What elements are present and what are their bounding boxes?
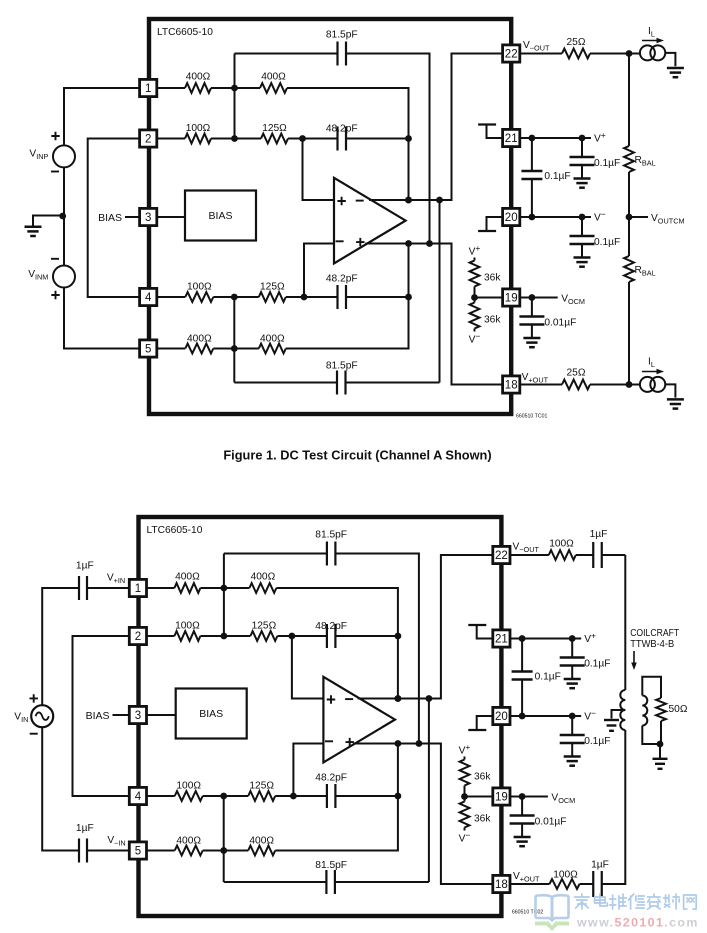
svg-text:1µF: 1µF [76,823,94,834]
svg-text:125Ω: 125Ω [262,123,287,134]
svg-text:1µF: 1µF [76,561,94,572]
svg-text:48.2pF: 48.2pF [315,621,347,632]
svg-text:3: 3 [135,710,141,722]
svg-text:400Ω: 400Ω [175,572,200,583]
svg-text:4: 4 [135,791,142,803]
svg-text:0.1µF: 0.1µF [535,672,561,683]
svg-text:36k: 36k [474,814,491,825]
svg-text:660510 TC02: 660510 TC02 [512,910,543,916]
svg-text:50Ω: 50Ω [669,704,688,715]
svg-text:25Ω: 25Ω [567,368,586,379]
svg-text:0.1µF: 0.1µF [594,237,620,248]
svg-text:TTWB-4-B: TTWB-4-B [630,639,674,650]
svg-text:4: 4 [145,292,152,304]
svg-text:1: 1 [145,83,151,95]
svg-text:125Ω: 125Ω [249,781,274,792]
svg-text:100Ω: 100Ω [549,539,574,550]
svg-text:0.1µF: 0.1µF [594,158,620,169]
svg-text:400Ω: 400Ω [251,572,276,583]
svg-text:19: 19 [495,792,508,804]
svg-text:5: 5 [145,344,151,356]
svg-text:81.5pF: 81.5pF [326,361,358,372]
svg-text:0.01µF: 0.01µF [544,318,576,329]
svg-text:400Ω: 400Ω [176,836,201,847]
svg-text:1: 1 [135,583,141,595]
svg-text:400Ω: 400Ω [249,836,274,847]
svg-text:LTC6605-10: LTC6605-10 [147,525,203,536]
svg-text:BIAS: BIAS [209,210,233,222]
svg-text:18: 18 [495,879,508,891]
svg-text:1µF: 1µF [591,860,609,871]
svg-text:0.1µF: 0.1µF [584,659,610,670]
svg-text:660510 TC01: 660510 TC01 [516,414,547,420]
svg-text:36k: 36k [484,273,501,284]
svg-text:25Ω: 25Ω [567,37,586,48]
svg-text:5: 5 [135,846,141,858]
svg-text:81.5pF: 81.5pF [315,530,347,541]
svg-text:2: 2 [135,631,141,643]
svg-text:18: 18 [505,380,518,392]
svg-text:100Ω: 100Ω [553,870,578,881]
svg-text:400Ω: 400Ω [261,72,286,83]
svg-text:1µF: 1µF [590,529,608,540]
svg-text:20: 20 [495,711,508,723]
svg-text:21: 21 [505,133,518,145]
svg-text:22: 22 [505,49,518,61]
svg-text:21: 21 [495,634,508,646]
svg-text:BIAS: BIAS [199,708,223,720]
svg-text:20: 20 [505,212,518,224]
svg-text:100Ω: 100Ω [186,123,211,134]
svg-text:COILCRAFT: COILCRAFT [630,628,679,639]
svg-text:125Ω: 125Ω [260,282,285,293]
svg-text:48.2pF: 48.2pF [326,274,358,285]
svg-text:BIAS: BIAS [98,212,122,224]
svg-text:81.5pF: 81.5pF [315,860,347,871]
svg-text:www.520101.com: www.520101.com [576,916,699,930]
svg-text:22: 22 [495,550,508,562]
svg-text:400Ω: 400Ω [187,334,212,345]
svg-text:3: 3 [145,212,151,224]
svg-text:BIAS: BIAS [86,710,110,722]
svg-text:100Ω: 100Ω [176,781,201,792]
svg-text:100Ω: 100Ω [187,282,212,293]
svg-text:0.1µF: 0.1µF [584,736,610,747]
svg-text:LTC6605-10: LTC6605-10 [157,27,213,38]
svg-text:19: 19 [505,293,518,305]
svg-text:400Ω: 400Ω [186,72,211,83]
svg-text:Figure 1. DC Test Circuit (Cha: Figure 1. DC Test Circuit (Channel A Sho… [223,448,491,463]
svg-text:100Ω: 100Ω [175,621,200,632]
svg-text:0.1µF: 0.1µF [544,171,570,182]
svg-text:125Ω: 125Ω [252,621,277,632]
svg-text:400Ω: 400Ω [260,334,285,345]
svg-text:36k: 36k [484,315,501,326]
svg-text:36k: 36k [474,772,491,783]
svg-text:81.5pF: 81.5pF [326,30,358,41]
svg-text:48.2pF: 48.2pF [315,773,347,784]
svg-text:2: 2 [145,134,151,146]
svg-text:48.2pF: 48.2pF [326,124,358,135]
svg-text:0.01µF: 0.01µF [535,817,567,828]
